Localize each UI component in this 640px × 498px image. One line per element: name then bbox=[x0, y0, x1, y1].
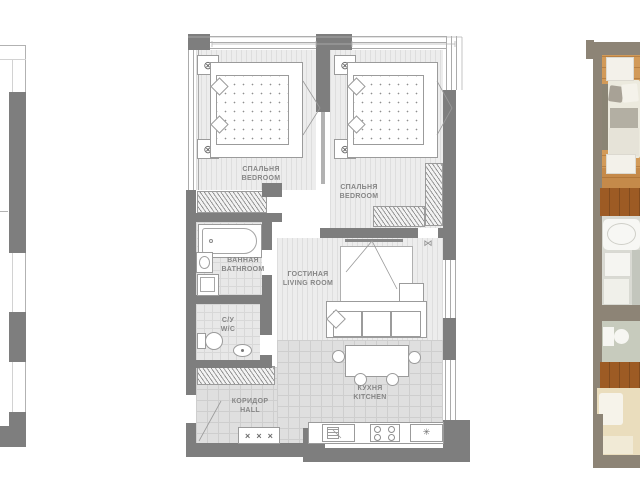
render-toilet-tank bbox=[603, 327, 614, 346]
render-bed-blanket bbox=[609, 128, 639, 156]
render-bed-pillow bbox=[621, 83, 639, 103]
render-bench bbox=[606, 154, 636, 174]
render-wall bbox=[586, 40, 594, 59]
render-shower bbox=[632, 250, 640, 306]
render-hall-furniture bbox=[603, 436, 633, 454]
floorplan-canvas: ⊗ ⊗ ⊗ ⊗ × × × bbox=[0, 0, 640, 498]
render-wall bbox=[593, 305, 640, 321]
render-washer bbox=[604, 252, 631, 277]
render-wardrobe bbox=[600, 188, 640, 216]
render-bathtub-basin bbox=[607, 223, 636, 245]
render-wall bbox=[600, 42, 640, 55]
render-nightstand bbox=[606, 57, 634, 81]
render-toilet-bowl bbox=[614, 329, 629, 344]
render-cabinet bbox=[604, 279, 629, 304]
render-wardrobe bbox=[600, 362, 640, 388]
render-bed-throw bbox=[610, 108, 638, 130]
right-plan-fragment bbox=[0, 0, 640, 498]
render-wall bbox=[593, 455, 640, 468]
